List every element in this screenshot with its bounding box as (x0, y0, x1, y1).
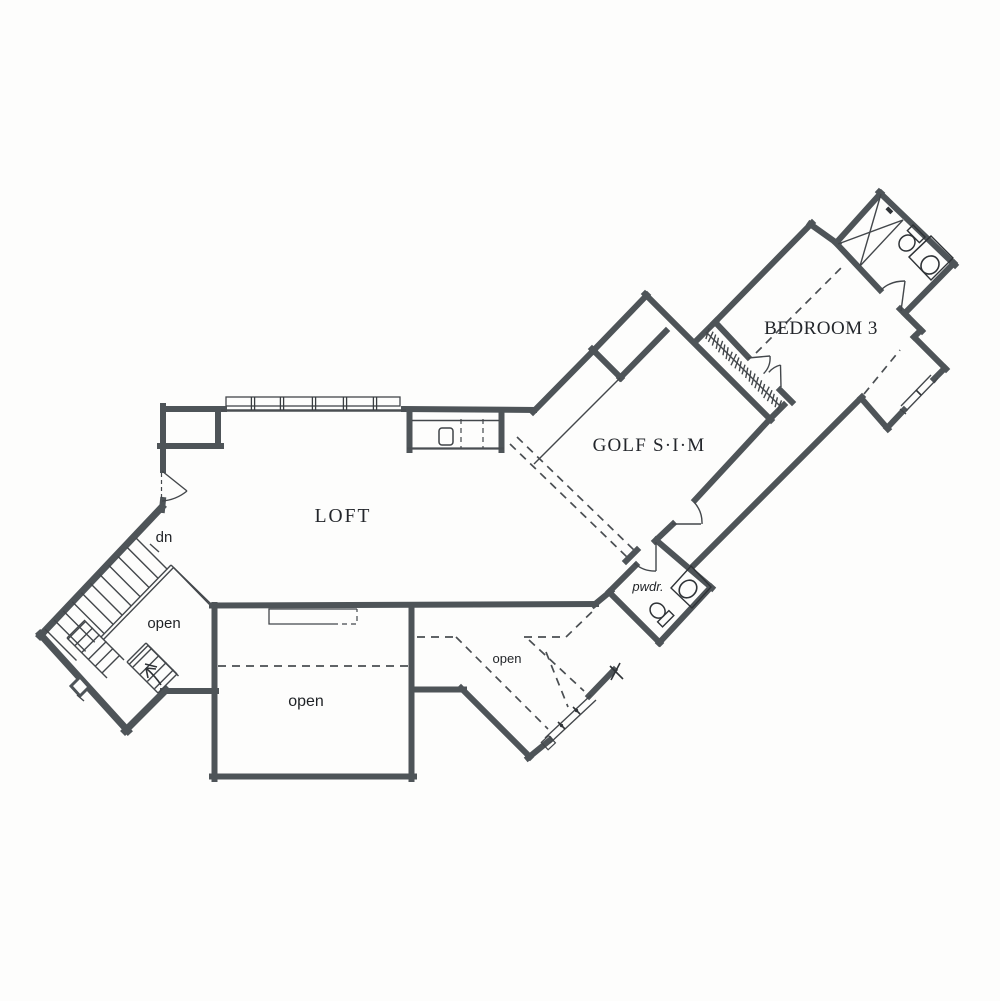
svg-text:open: open (493, 651, 522, 666)
svg-text:dn: dn (156, 529, 173, 546)
svg-text:open: open (288, 693, 324, 710)
svg-text:pwdr.: pwdr. (631, 579, 663, 594)
svg-text:GOLF S·I·M: GOLF S·I·M (593, 435, 706, 456)
svg-text:open: open (147, 615, 180, 632)
svg-text:LOFT: LOFT (315, 506, 372, 527)
svg-text:BEDROOM 3: BEDROOM 3 (764, 318, 878, 339)
